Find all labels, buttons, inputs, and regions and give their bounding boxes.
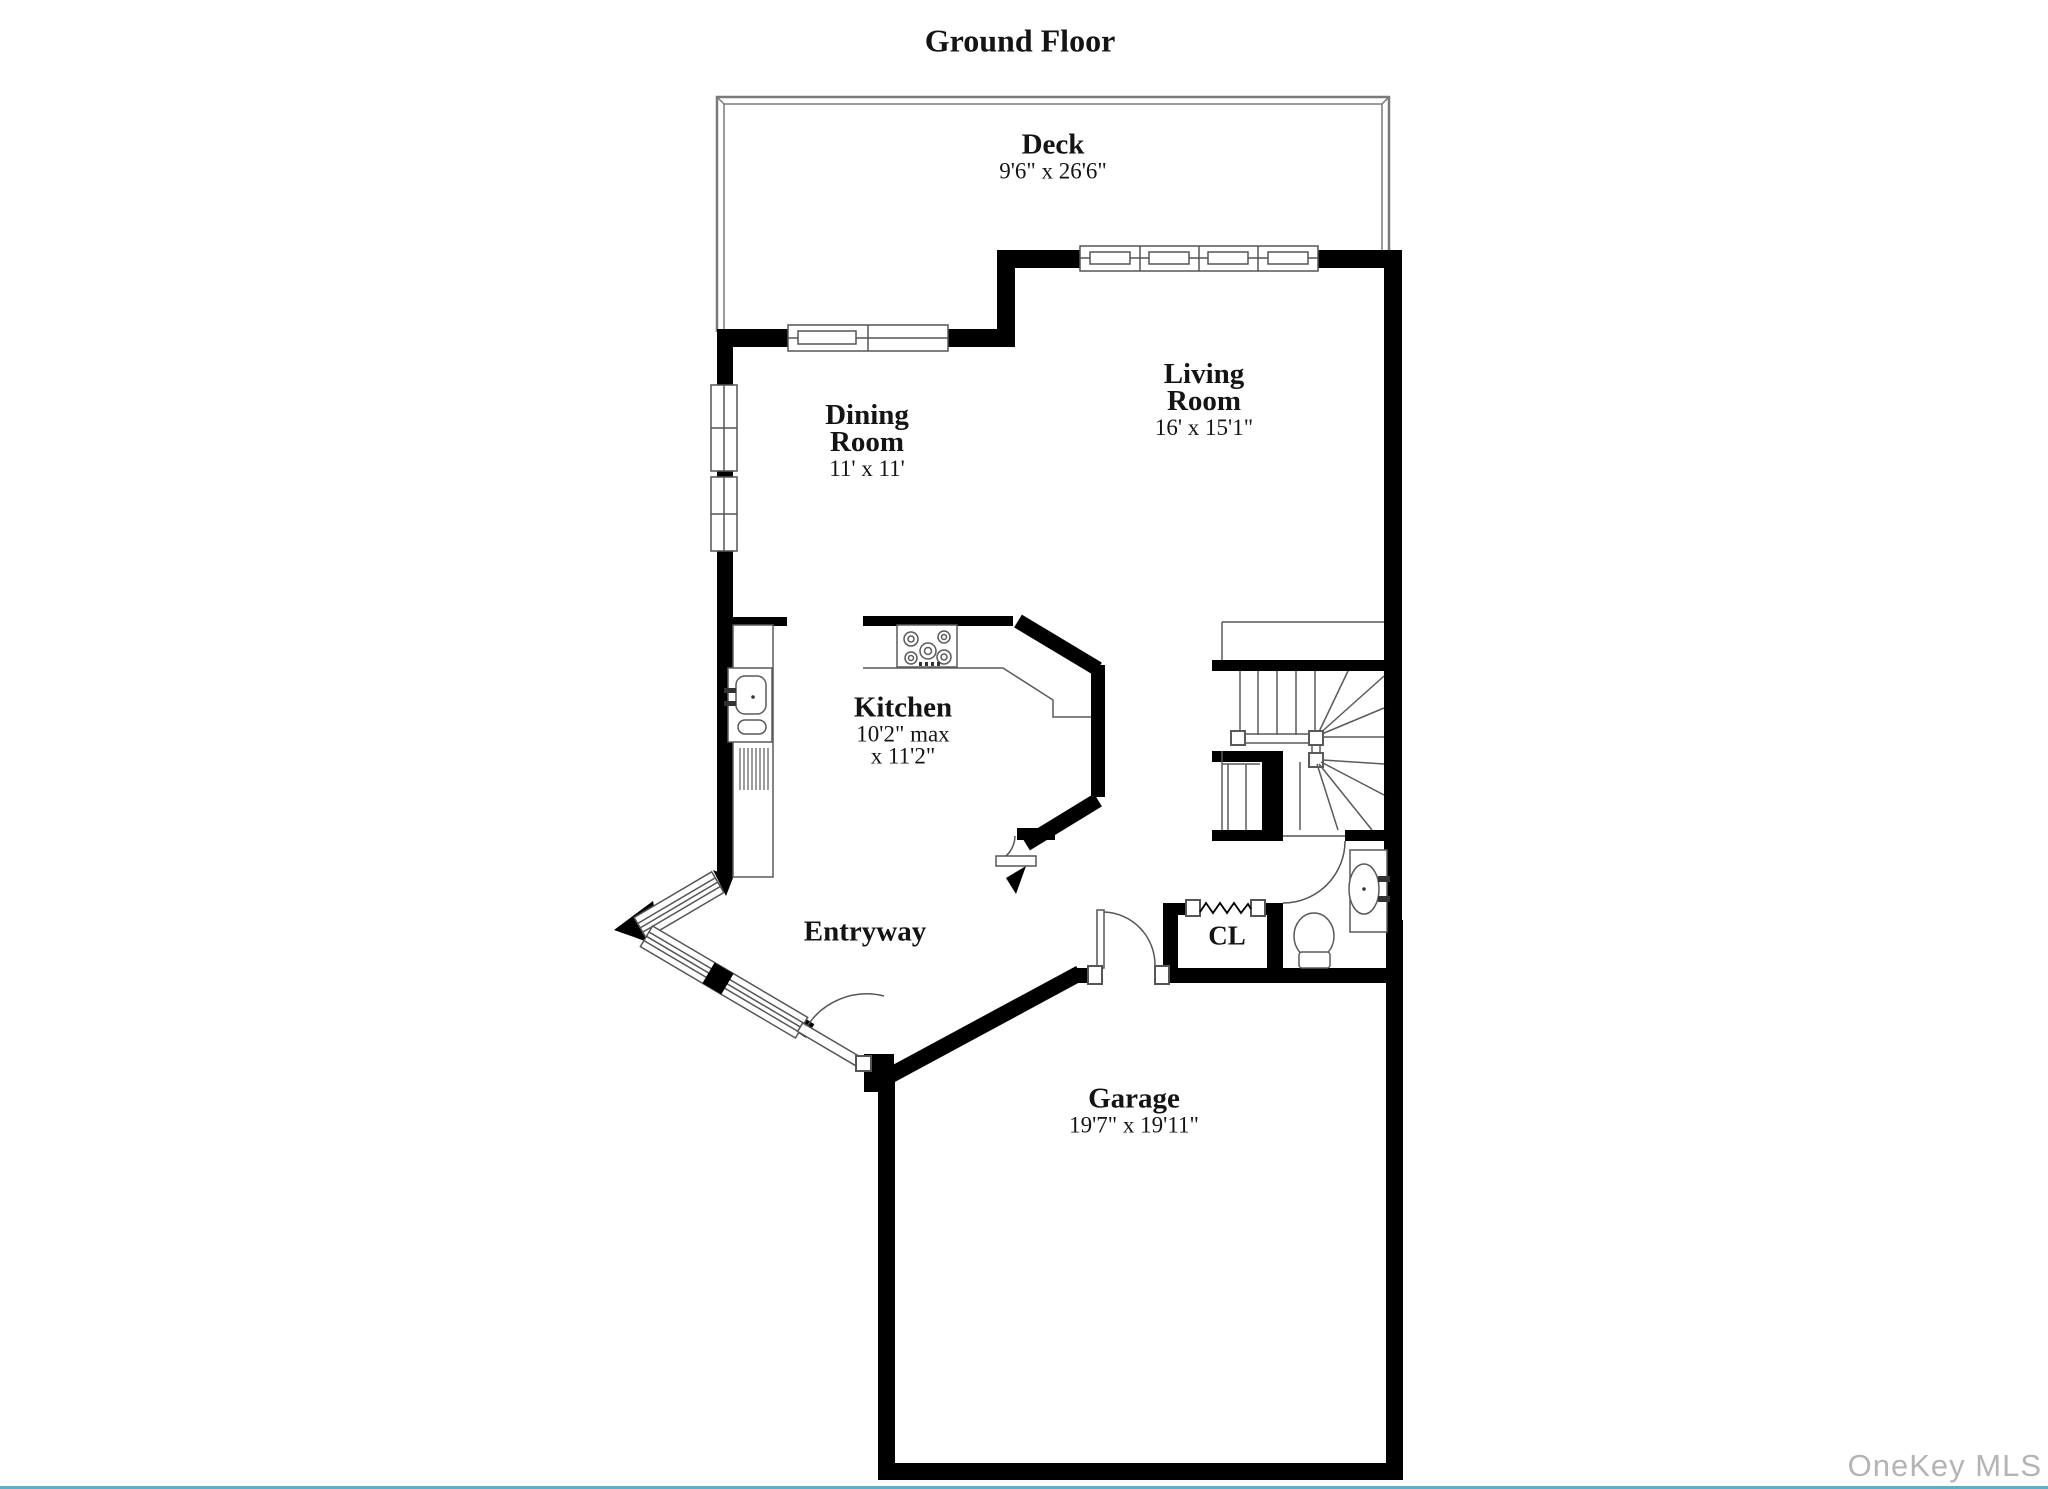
room-label-kitchen: Kitchen 10'2" max x 11'2" [854, 695, 952, 768]
window-entry-upper-icon [634, 872, 724, 938]
room-dims: 16' x 15'1" [1155, 417, 1253, 439]
window-entry-lower-icon [640, 926, 807, 1038]
room-label-entryway: Entryway [804, 919, 926, 946]
room-name: Dining Room [825, 402, 909, 456]
page-title: Ground Floor [925, 23, 1116, 60]
doors [798, 836, 1345, 1071]
room-name: Kitchen [854, 695, 952, 722]
bathroom-sink-icon [1349, 850, 1390, 932]
closet-rod-zigzag-icon [1200, 903, 1251, 913]
hall-door-icon [1088, 910, 1169, 984]
room-dims: 19'7" x 19'11" [1069, 1115, 1199, 1137]
floor-plan-page: Ground Floor Deck 9'6" x 26'6" Dining Ro… [0, 0, 2048, 1489]
room-name: Deck [999, 132, 1107, 159]
window-living-icon [1080, 246, 1318, 271]
bathroom-fixtures [1294, 850, 1390, 968]
room-label-garage: Garage 19'7" x 19'11" [1069, 1086, 1199, 1137]
room-dims: 11' x 11' [825, 458, 909, 480]
toilet-icon [1294, 913, 1334, 968]
room-name: Living Room [1155, 361, 1253, 415]
staircase-symbol [1222, 622, 1384, 830]
room-dims: 10'2" max x 11'2" [854, 724, 952, 768]
kitchen-sink-icon [724, 668, 772, 742]
room-name: Entryway [804, 919, 926, 946]
room-label-closet: CL [1208, 923, 1246, 950]
window-dining-icon [788, 325, 948, 351]
room-label-deck: Deck 9'6" x 26'6" [999, 132, 1107, 183]
bathroom-door-icon [1283, 836, 1345, 903]
kitchen-counter [733, 625, 773, 877]
room-dims: 9'6" x 26'6" [999, 161, 1107, 183]
room-name: Garage [1069, 1086, 1199, 1113]
stove-burners-icon [897, 625, 957, 667]
closet-jamb-right [1251, 900, 1265, 916]
room-label-living: Living Room 16' x 15'1" [1155, 361, 1253, 439]
watermark-onekey-mls: OneKey MLS [1848, 1448, 2042, 1484]
window-left-upper-icon [711, 385, 737, 471]
room-label-dining: Dining Room 11' x 11' [825, 402, 909, 480]
window-left-lower-icon [711, 477, 737, 551]
closet-jamb-left [1186, 900, 1200, 916]
floor-plan-drawing [0, 0, 2048, 1489]
room-name: CL [1208, 923, 1246, 950]
front-door-icon [798, 994, 884, 1071]
